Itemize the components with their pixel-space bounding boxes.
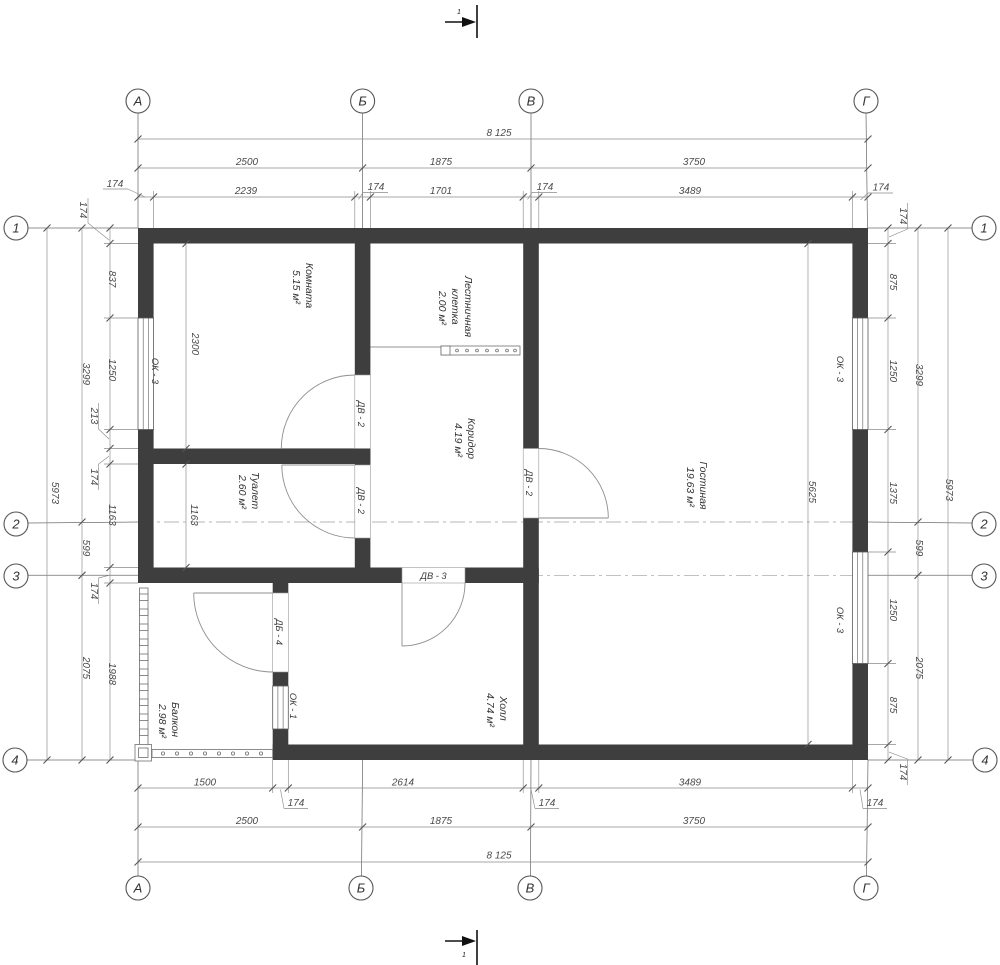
room-name: Балкон xyxy=(169,702,181,737)
dim-label: 174 xyxy=(539,798,556,809)
dim-label: 1701 xyxy=(430,186,452,197)
dim-label: 174 xyxy=(107,179,124,190)
dim-label: 3299 xyxy=(80,363,91,386)
railing-detail xyxy=(140,729,149,736)
axis-label-right-4: 4 xyxy=(981,753,988,768)
dim-label: 174 xyxy=(77,202,88,219)
room-area: 19.63 м² xyxy=(684,467,696,507)
dim-label: 2075 xyxy=(913,656,924,680)
railing-detail xyxy=(259,752,262,755)
dim-label: 2614 xyxy=(391,778,415,789)
railing-detail xyxy=(466,349,469,352)
floor-plan-drawing: 174 2239 174 1701 174 3489 174 2500 1875… xyxy=(0,0,1000,965)
room-name: Лестничная xyxy=(462,275,474,338)
wall-left-upper xyxy=(138,228,154,318)
window-label-ok3-left: ОК - 3 xyxy=(150,358,160,385)
railing-detail xyxy=(476,349,479,352)
dim-label: 174 xyxy=(867,798,884,809)
room-area: 4.74 м² xyxy=(484,693,496,728)
wall-bottom xyxy=(273,745,868,761)
door-label-dv2-living: ДВ - 2 xyxy=(524,469,534,497)
wall-axis-3-b xyxy=(465,568,539,584)
axis-label-left-3: 3 xyxy=(12,569,20,584)
dim-label: 174 xyxy=(897,208,908,225)
room-label-corridor: Коридор 4.19 м² xyxy=(452,418,477,462)
room-label-wc: Туалет 2.60 м² xyxy=(236,472,261,512)
window-label-ok3-right-top: ОК - 3 xyxy=(835,356,845,383)
axis-label-bottom-g: Г xyxy=(862,881,870,896)
floor-plan-canvas: 174 2239 174 1701 174 3489 174 2500 1875… xyxy=(0,0,1000,965)
railing-detail xyxy=(140,684,149,691)
door-label-db4: ДБ - 4 xyxy=(274,618,284,645)
dim-label: 174 xyxy=(537,182,554,193)
wall-right-2 xyxy=(852,430,868,553)
dim-label-total: 8 125 xyxy=(486,128,511,139)
stair-railing xyxy=(370,346,520,355)
dim-label: 3750 xyxy=(683,816,706,827)
dim-label: 2075 xyxy=(80,656,91,680)
railing-detail xyxy=(506,349,509,352)
room-area: 5.15 м² xyxy=(290,270,302,305)
dim-label: 1875 xyxy=(430,816,453,827)
railing-detail xyxy=(189,752,192,755)
dim-label: 599 xyxy=(913,540,924,557)
door-label-dv3: ДВ - 3 xyxy=(419,571,447,581)
dim-label: 837 xyxy=(106,271,117,288)
dim-label: 1500 xyxy=(194,778,217,789)
dim-label: 174 xyxy=(368,182,385,193)
door-label-dv2-wc: ДВ - 2 xyxy=(356,487,366,515)
window-ok3-right-top xyxy=(852,318,868,430)
axis-label-right-1: 1 xyxy=(980,221,987,236)
room-label-balcony: Балкон 2.98 м² xyxy=(156,702,181,740)
section-number: 1 xyxy=(462,952,466,959)
door-dv2-living xyxy=(523,449,608,519)
dim-label: 1163 xyxy=(188,504,199,526)
dim-label: 3299 xyxy=(913,364,924,387)
door-label-dv2-room: ДВ - 2 xyxy=(356,400,366,428)
axis-label-left-2: 2 xyxy=(11,517,20,532)
axis-label-top-g: Г xyxy=(862,94,870,109)
room-area: 2.60 м² xyxy=(236,474,248,510)
wall-wc-top xyxy=(138,449,370,465)
room-name: Коридор xyxy=(465,418,477,459)
railing-detail xyxy=(161,752,164,755)
wall-axis-3-a xyxy=(138,568,402,584)
section-mark-bottom: 1 xyxy=(445,930,477,965)
axis-label-bottom-a: А xyxy=(133,881,143,896)
dim-label: 174 xyxy=(873,183,890,194)
room-labels: Комната 5.15 м² Лестничная клетка 2.00 м… xyxy=(156,263,709,740)
room-label-hall: Холл 4.74 м² xyxy=(484,693,509,728)
dim-label: 1250 xyxy=(106,359,117,382)
room-area: 4.19 м² xyxy=(452,423,464,458)
section-arrow-icon xyxy=(462,936,476,946)
axis-label-top-a: А xyxy=(133,94,143,109)
axis-label-top-b: Б xyxy=(358,94,367,109)
axis-label-right-2: 2 xyxy=(979,517,988,532)
opening-labels: ОК - 3 ОК - 3 ОК - 3 ОК - 1 ДВ - 2 ДВ - … xyxy=(150,356,845,719)
railing-detail xyxy=(175,752,178,755)
axis-label-left-1: 1 xyxy=(12,221,19,236)
dim-label: 2500 xyxy=(235,157,259,168)
room-label-stair: Лестничная клетка 2.00 м² xyxy=(436,275,474,340)
room-area: 2.98 м² xyxy=(156,703,168,739)
window-label-ok1: ОК - 1 xyxy=(288,693,298,719)
room-area: 2.00 м² xyxy=(436,290,448,326)
railing-detail xyxy=(140,609,149,616)
railing-detail xyxy=(140,639,149,646)
wall-axis-v-1 xyxy=(523,228,539,449)
section-mark-top: 1 xyxy=(445,5,477,38)
room-label-komnata: Комната 5.15 м² xyxy=(290,263,315,311)
railing-detail xyxy=(496,349,499,352)
room-name: Комната xyxy=(303,263,315,308)
dim-label: 1250 xyxy=(887,360,898,383)
railing-detail xyxy=(486,349,489,352)
dim-label: 1250 xyxy=(887,599,898,622)
dim-label-total: 5973 xyxy=(943,479,954,502)
railing-detail xyxy=(231,752,234,755)
railing-detail xyxy=(140,654,149,661)
railing-detail xyxy=(140,624,149,631)
axis-label-bottom-v: В xyxy=(526,881,535,896)
dimension-labels-top: 174 2239 174 1701 174 3489 174 2500 1875… xyxy=(107,128,890,197)
wall-right-1 xyxy=(852,228,868,318)
doors xyxy=(194,375,609,672)
windows xyxy=(138,318,868,729)
wall-axis-v-2 xyxy=(523,518,539,760)
dim-label: 3750 xyxy=(683,157,706,168)
dim-label: 1163 xyxy=(106,504,117,526)
wall-top xyxy=(138,228,868,244)
dim-label: 3489 xyxy=(679,186,702,197)
dim-label: 2300 xyxy=(189,332,200,356)
dim-label: 3489 xyxy=(679,778,702,789)
dim-label: 875 xyxy=(887,274,898,291)
dim-label: 599 xyxy=(80,540,91,557)
room-label-living: Гостиная 19.63 м² xyxy=(684,462,709,513)
dim-label: 174 xyxy=(88,469,99,486)
railing-detail xyxy=(140,669,149,676)
dimension-labels-interior: 2300 1163 5625 xyxy=(188,332,817,526)
railing-detail xyxy=(217,752,220,755)
dim-label: 1375 xyxy=(887,482,898,505)
axis-label-right-3: 3 xyxy=(980,569,988,584)
railing-detail xyxy=(456,349,459,352)
dim-label: 875 xyxy=(887,697,898,714)
room-name: Туалет xyxy=(249,472,261,510)
dim-label: 2239 xyxy=(234,186,258,197)
railing-detail xyxy=(140,699,149,706)
window-label-ok3-right-bottom: ОК - 3 xyxy=(835,607,845,634)
railing-detail xyxy=(245,752,248,755)
axis-label-top-v: В xyxy=(527,94,536,109)
balcony-railing xyxy=(135,588,273,761)
railing-detail xyxy=(203,752,206,755)
section-arrow-icon xyxy=(462,17,476,27)
window-ok3-right-bottom xyxy=(852,552,868,664)
room-name: Холл xyxy=(497,695,509,720)
section-number: 1 xyxy=(457,9,461,16)
wall-hall-left-mid xyxy=(273,672,289,686)
dim-label: 213 xyxy=(88,407,99,425)
dim-label: 2500 xyxy=(235,816,259,827)
dimension-labels-left: 174 837 1250 213 174 1163 174 1988 3299 … xyxy=(49,202,117,686)
window-ok1-balcony xyxy=(273,686,289,729)
railing-detail xyxy=(140,714,149,721)
railing-detail xyxy=(140,594,149,601)
railing-detail xyxy=(514,349,517,352)
wall-hall-left-stub xyxy=(273,583,289,593)
wall-axis-b-1 xyxy=(355,228,371,375)
dim-label: 174 xyxy=(897,764,908,781)
dim-label-total: 5973 xyxy=(49,482,60,505)
dim-label: 1875 xyxy=(430,157,453,168)
dim-label: 5625 xyxy=(806,481,817,504)
axis-label-bottom-b: Б xyxy=(357,881,366,896)
dim-label: 1988 xyxy=(106,663,117,686)
axis-label-left-4: 4 xyxy=(11,753,18,768)
room-name: клетка xyxy=(449,288,461,324)
dim-label: 174 xyxy=(288,798,305,809)
axis-lines xyxy=(27,113,973,876)
room-name: Гостиная xyxy=(697,462,709,510)
dimension-labels-right: 174 875 1250 1375 1250 875 174 3299 599 … xyxy=(887,208,954,781)
dim-label: 174 xyxy=(88,583,99,600)
dim-label-total: 8 125 xyxy=(486,851,511,862)
